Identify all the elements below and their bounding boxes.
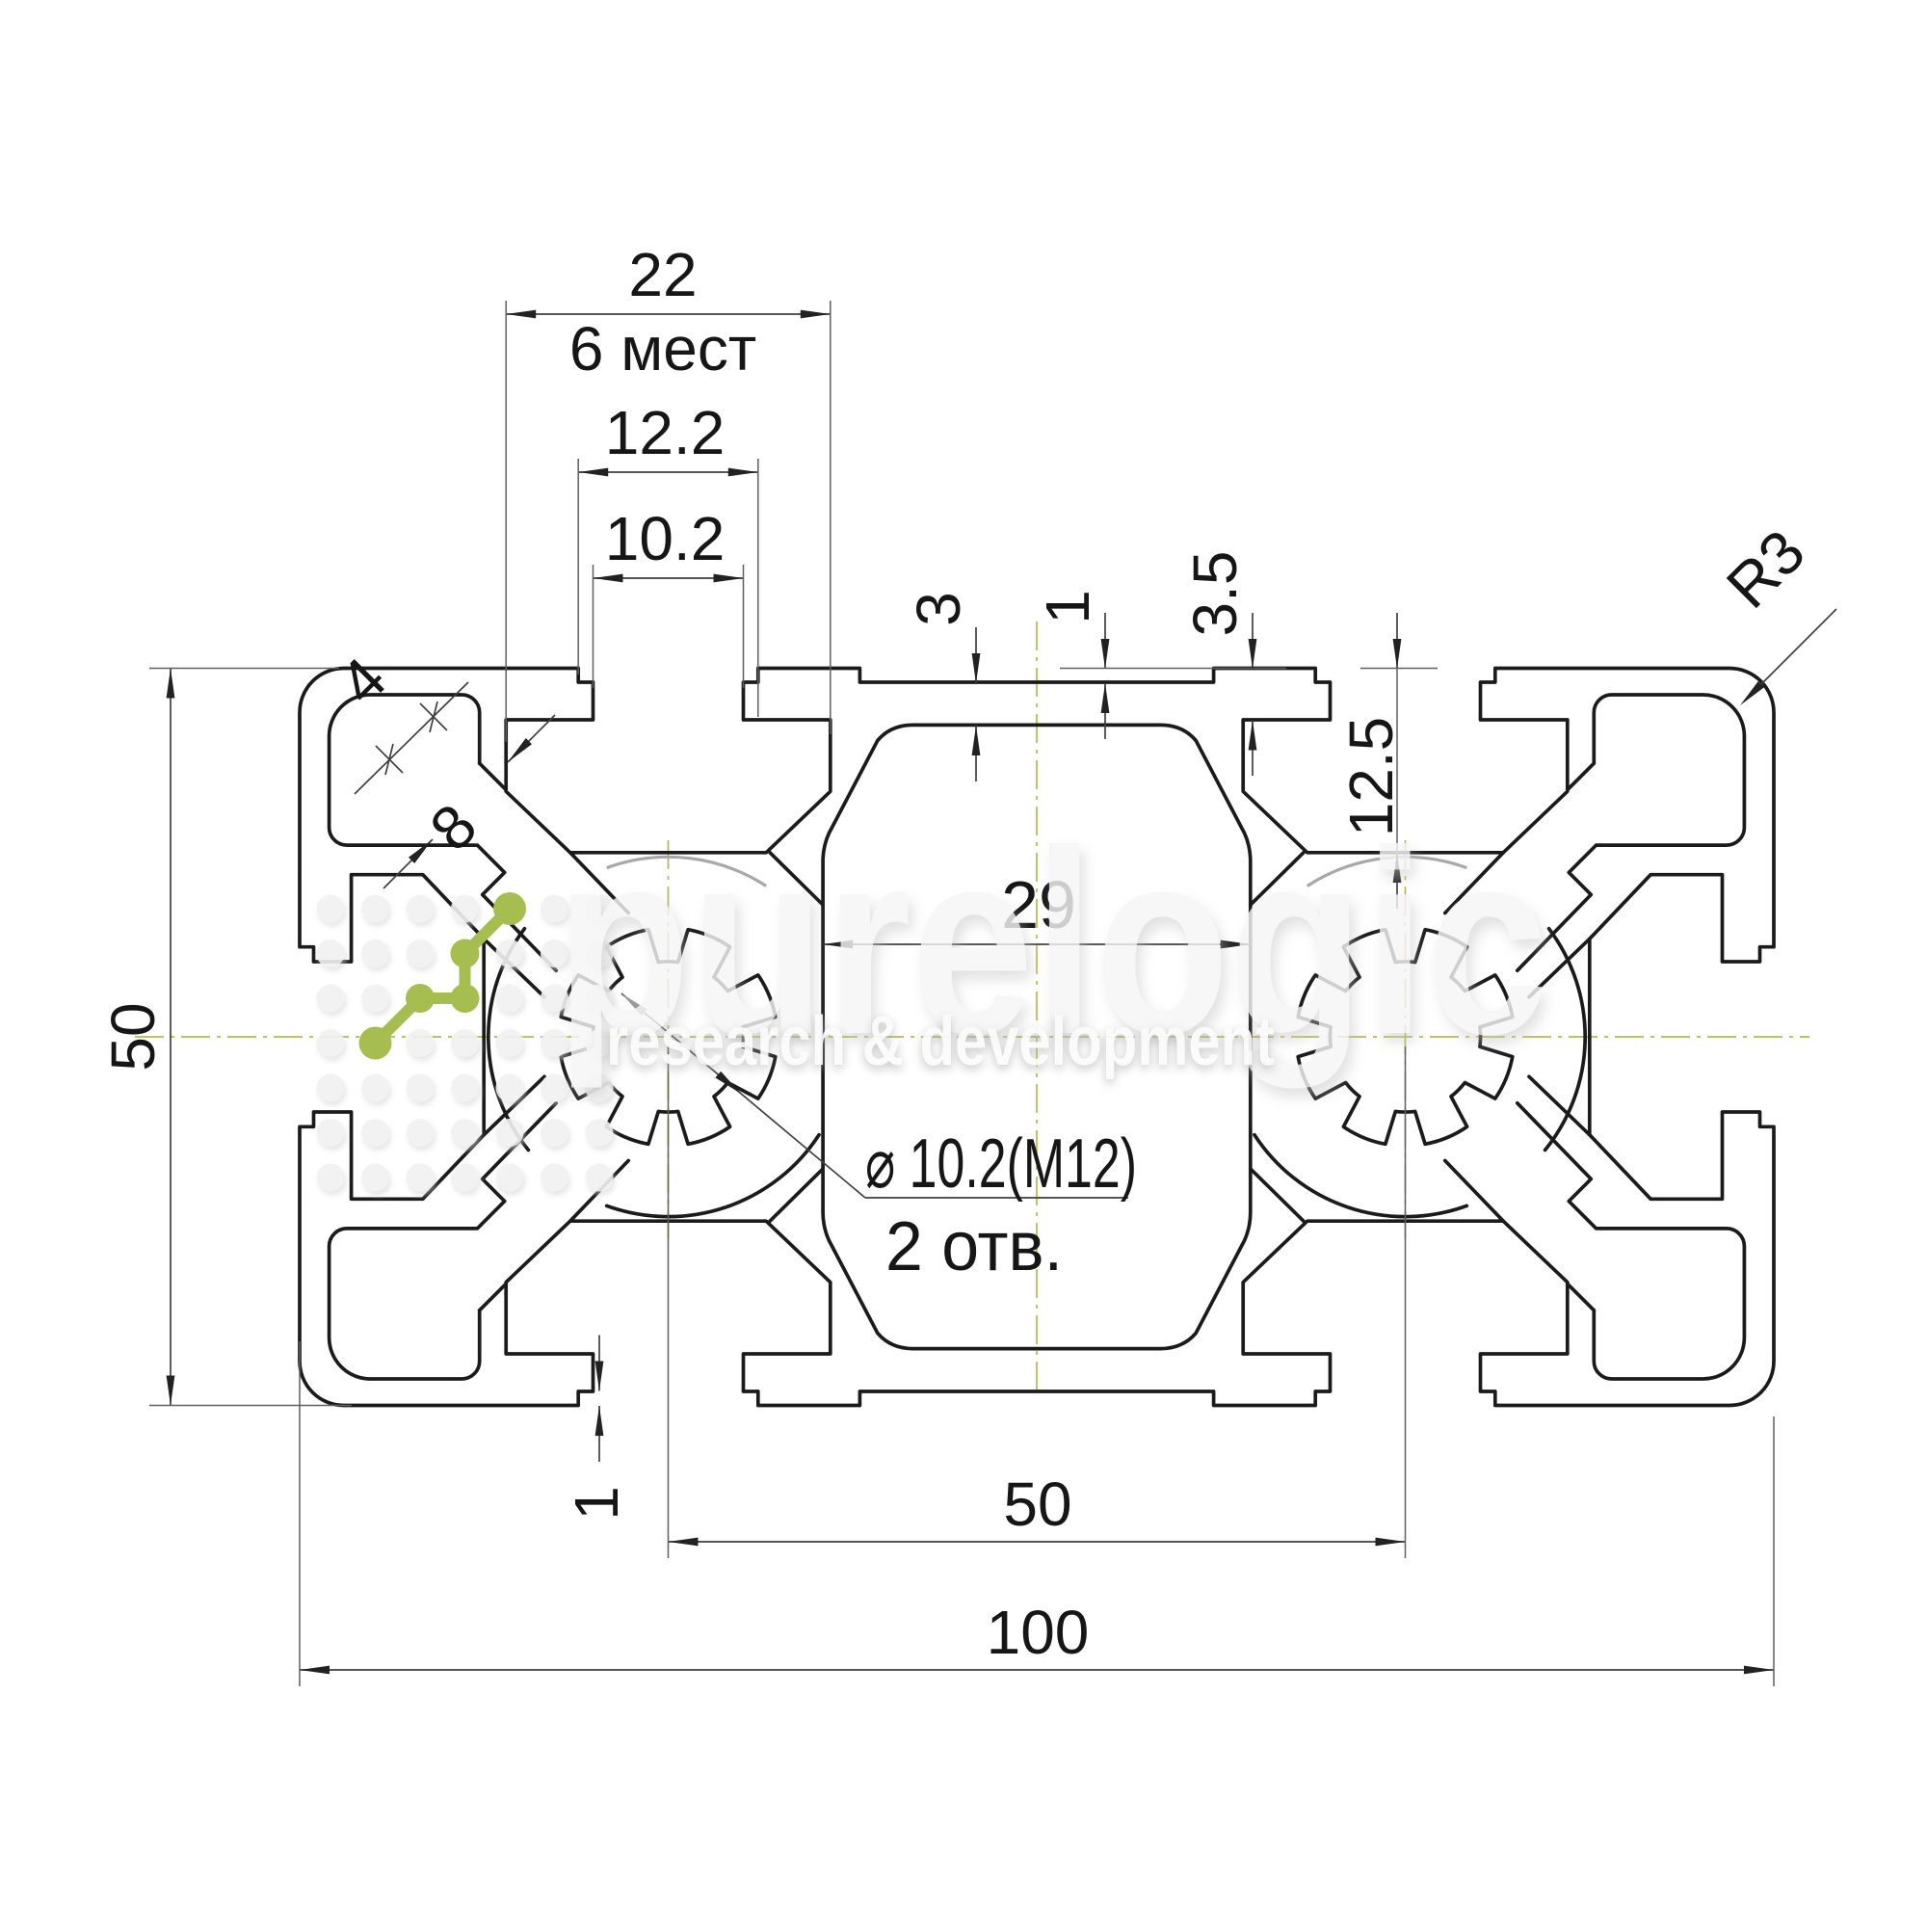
svg-text:research & development: research & development bbox=[606, 1003, 1275, 1080]
svg-text:3.5: 3.5 bbox=[1180, 551, 1250, 637]
svg-text:50: 50 bbox=[1003, 1469, 1071, 1539]
svg-text:1: 1 bbox=[1033, 590, 1102, 624]
svg-text:50: 50 bbox=[98, 1002, 168, 1071]
svg-text:⌀ 10.2(M12): ⌀ 10.2(M12) bbox=[865, 1125, 1137, 1203]
svg-text:100: 100 bbox=[987, 1598, 1090, 1667]
svg-text:12.2: 12.2 bbox=[605, 398, 726, 467]
svg-text:1: 1 bbox=[562, 1486, 631, 1521]
svg-text:3: 3 bbox=[904, 592, 973, 626]
svg-text:2 отв.: 2 отв. bbox=[885, 1208, 1063, 1285]
svg-text:22: 22 bbox=[628, 240, 697, 309]
svg-text:6 мест: 6 мест bbox=[569, 314, 756, 384]
svg-text:10.2: 10.2 bbox=[605, 504, 726, 573]
